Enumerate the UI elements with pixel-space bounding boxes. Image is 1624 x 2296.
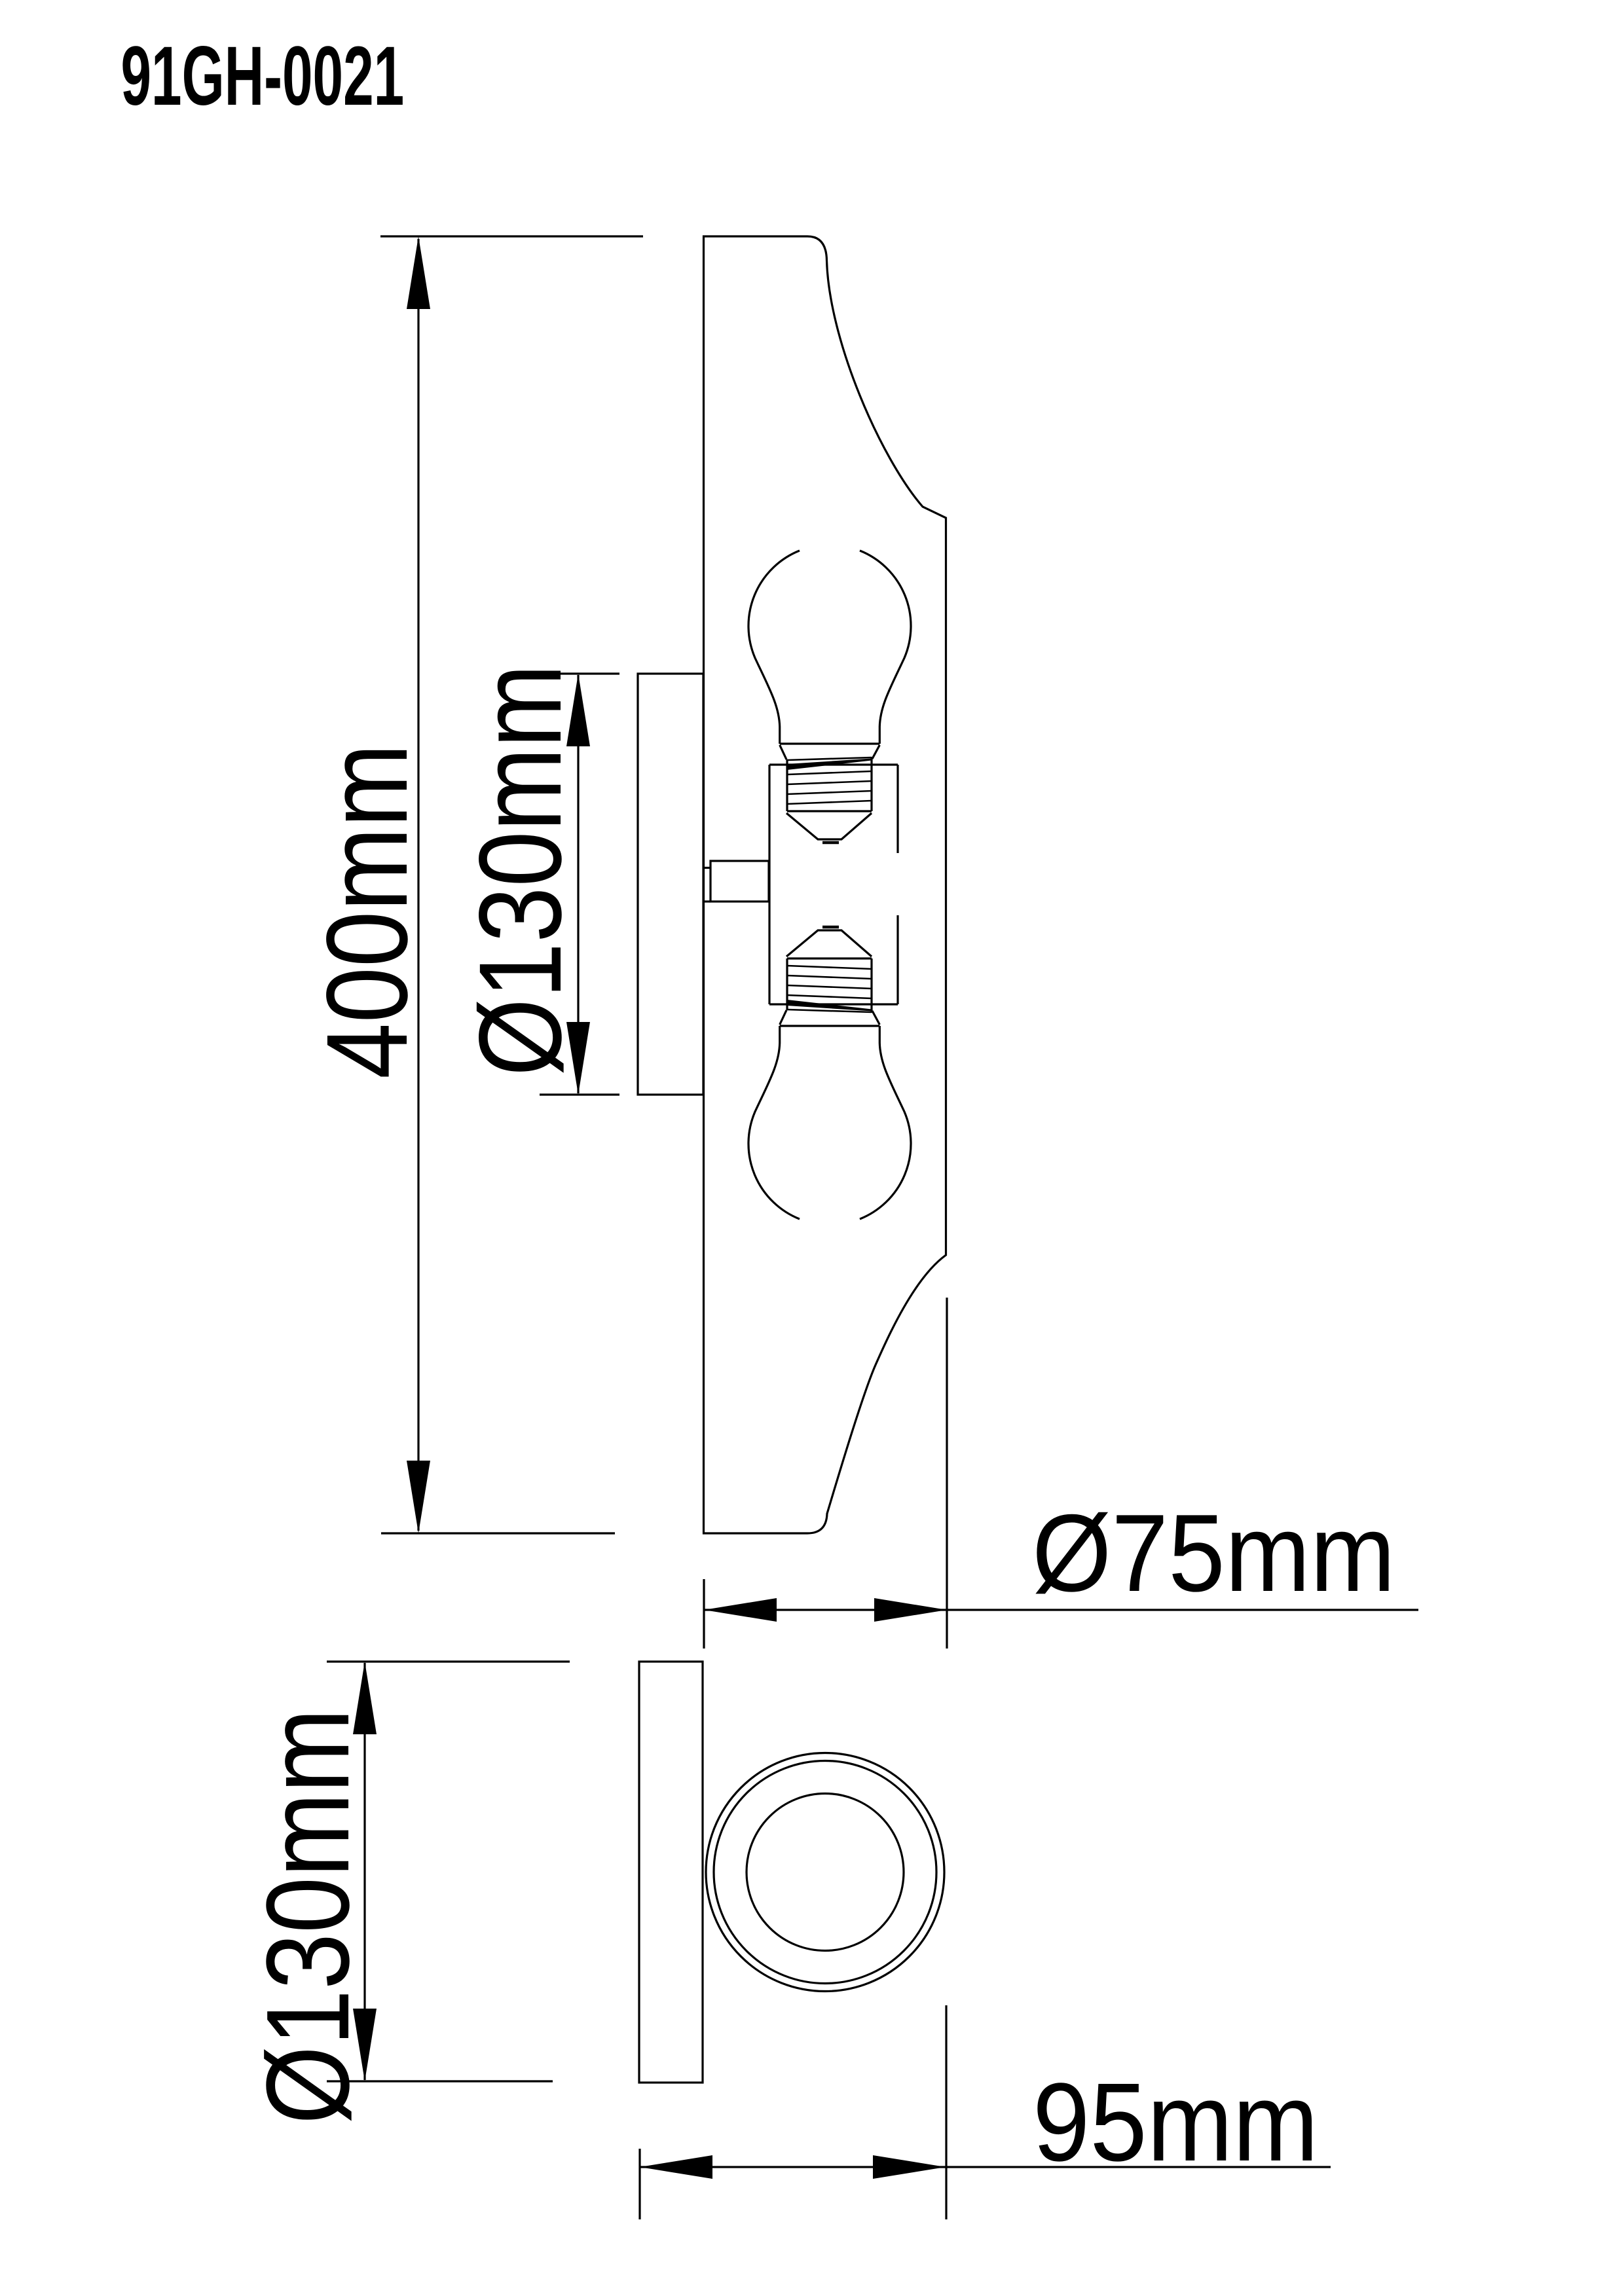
svg-text:400mm: 400mm: [303, 744, 432, 1079]
svg-text:Ø75mm: Ø75mm: [1032, 1492, 1395, 1615]
svg-text:Ø130mm: Ø130mm: [242, 1709, 374, 2124]
svg-text:95mm: 95mm: [1033, 2060, 1318, 2184]
svg-text:Ø130mm: Ø130mm: [455, 664, 586, 1076]
svg-text:91GH-0021: 91GH-0021: [121, 29, 405, 122]
